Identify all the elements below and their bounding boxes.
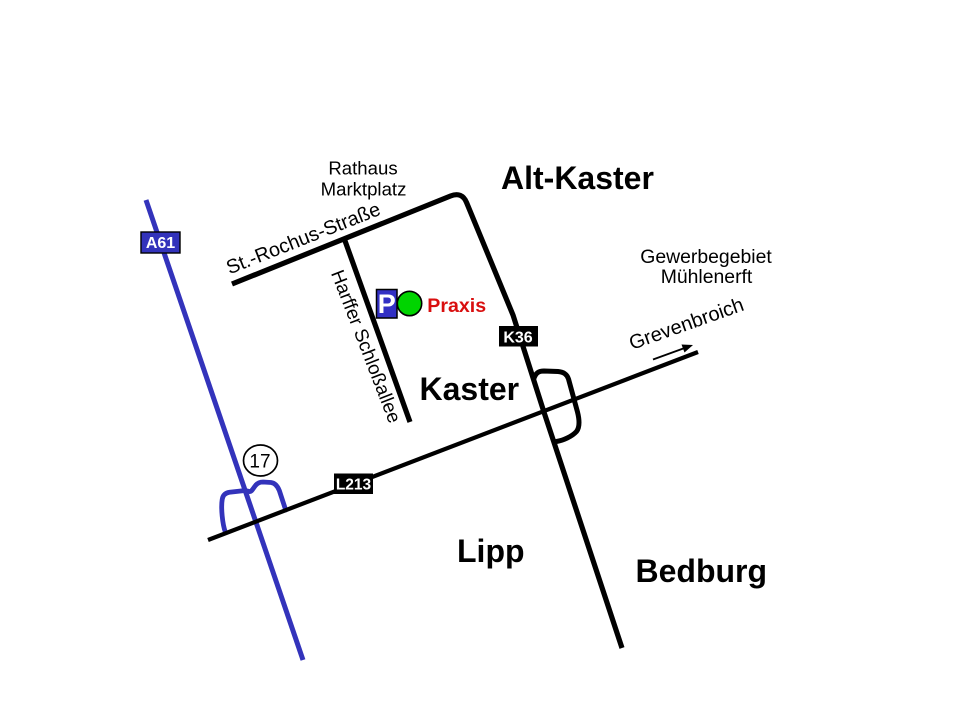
svg-text:A61: A61 — [146, 235, 175, 252]
svg-text:Rathaus: Rathaus — [328, 158, 397, 179]
svg-text:L213: L213 — [336, 477, 372, 494]
svg-text:Gewerbegebiet: Gewerbegebiet — [640, 246, 772, 268]
svg-text:Kaster: Kaster — [420, 371, 520, 407]
svg-text:Alt-Kaster: Alt-Kaster — [501, 160, 654, 196]
svg-text:K36: K36 — [503, 330, 532, 347]
svg-text:Lipp: Lipp — [457, 533, 525, 569]
svg-text:Praxis: Praxis — [427, 295, 486, 317]
svg-text:17: 17 — [249, 452, 270, 473]
svg-text:Mühlenerft: Mühlenerft — [661, 266, 753, 288]
svg-text:Bedburg: Bedburg — [636, 553, 768, 589]
svg-text:P: P — [378, 289, 396, 319]
svg-text:Marktplatz: Marktplatz — [321, 179, 407, 200]
